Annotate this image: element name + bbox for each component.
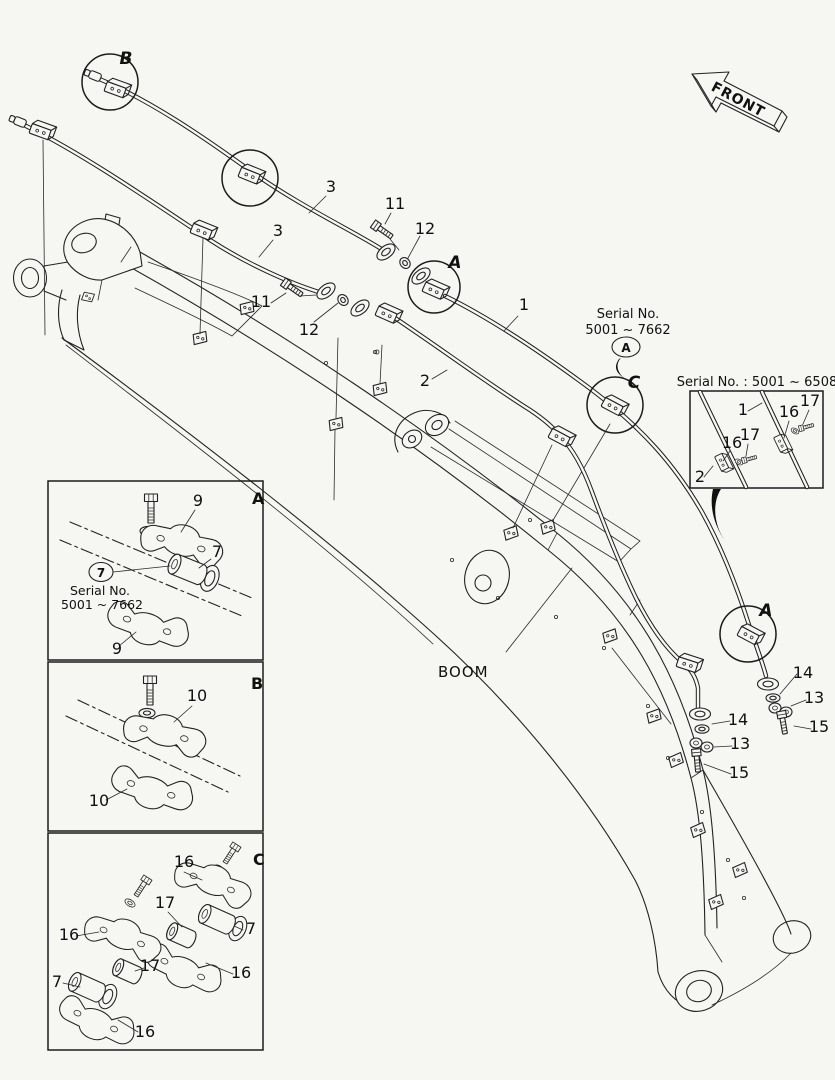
marker-a-right: A — [757, 601, 772, 621]
panel-b-bolt — [144, 676, 157, 705]
pipe-end-fitting — [83, 68, 102, 82]
parts-diagram-page: Serial No. 5001 ~ 7662 A Serial No. : 50… — [0, 0, 835, 1080]
callout-11-upper: 11 — [385, 194, 405, 213]
panel-b-callout-10-lower: 10 — [89, 791, 109, 810]
callout-13-inner: 13 — [730, 734, 750, 753]
front-arrow: FRONT — [692, 72, 787, 132]
serial-badge-letter: A — [621, 341, 631, 355]
callout-12-upper: 12 — [415, 219, 435, 238]
callout-14-inner: 14 — [728, 710, 748, 729]
serial-inset: Serial No. : 5001 ~ 6508 1 16 17 16 17 2 — [677, 375, 835, 488]
inset-callout-16-right: 16 — [779, 402, 799, 421]
clamp-pads — [192, 301, 749, 909]
boom-label: BOOM — [438, 663, 489, 681]
marker-a-top: A — [446, 253, 461, 273]
panel-a-corner: A — [252, 489, 265, 508]
marker-b: B — [120, 49, 133, 69]
panel-c-callout-17-r: 17 — [155, 893, 175, 912]
bolt-11-upper — [370, 220, 394, 241]
panel-c-callout-16-ll: 16 — [135, 1022, 155, 1041]
serial-note-line1: Serial No. — [597, 307, 660, 322]
panel-c-right-bushing-17 — [164, 921, 198, 949]
panel-a-callout-7: 7 — [212, 542, 222, 561]
callout-2: 2 — [420, 371, 430, 390]
callout-3-lower: 3 — [273, 221, 283, 240]
panel-b-callout-10-upper: 10 — [187, 686, 207, 705]
inset-callout-17-right: 17 — [800, 391, 820, 410]
callout-15-outer: 15 — [809, 717, 829, 736]
panel-c-corner: C — [253, 850, 265, 869]
detail-panel-b: B 10 10 — [48, 662, 263, 831]
panel-c-callout-16-ru: 16 — [174, 852, 194, 871]
panel-a-bolt — [145, 494, 158, 523]
panel-a-badge-7: 7 — [97, 566, 105, 580]
panel-b-corner: B — [251, 674, 263, 693]
panel-c-callout-16-rl: 16 — [231, 963, 251, 982]
panel-c-callout-17-l: 17 — [140, 956, 160, 975]
curved-arrow-small — [616, 358, 624, 378]
callout-1: 1 — [519, 295, 529, 314]
panel-a-serial2: 5001 ~ 7662 — [61, 597, 143, 612]
detail-panel-c: C 16 17 7 16 16 17 7 16 — [48, 833, 265, 1053]
main-callouts: B 3 11 12 3 A 11 12 1 2 C A 14 13 15 14 … — [120, 49, 830, 782]
callout-11-lower: 11 — [251, 292, 271, 311]
panel-c-callout-7-r: 7 — [246, 919, 256, 938]
panel-a-serial1: Serial No. — [70, 583, 130, 598]
serial-note-top: Serial No. 5001 ~ 7662 A — [585, 307, 670, 378]
inset-title: Serial No. : 5001 ~ 6508 — [677, 375, 835, 390]
panel-a-callout-9-lower: 9 — [112, 639, 122, 658]
inset-callout-2: 2 — [695, 467, 705, 486]
panel-b-clamp-lower — [107, 763, 197, 818]
callout-12-lower: 12 — [299, 320, 319, 339]
callout-3-upper: 3 — [326, 177, 336, 196]
marker-c: C — [628, 373, 641, 393]
inset-callout-17-left: 17 — [740, 425, 760, 444]
boom-body — [14, 140, 816, 1017]
callout-15-inner: 15 — [729, 763, 749, 782]
callout-13-outer: 13 — [804, 688, 824, 707]
detail-panel-a: A 9 7 7 Serial No. 5001 ~ 7662 9 — [48, 481, 265, 660]
boom-piping-diagram: Serial No. 5001 ~ 7662 A Serial No. : 50… — [0, 0, 835, 1080]
inset-callout-1: 1 — [738, 400, 748, 419]
panel-a-callout-9-upper: 9 — [193, 491, 203, 510]
rivet-dots — [324, 350, 745, 899]
panel-c-callout-7-l: 7 — [52, 972, 62, 991]
serial-note-line2: 5001 ~ 7662 — [585, 323, 670, 338]
callout-14-outer: 14 — [793, 663, 813, 682]
panel-c-callout-16-lu: 16 — [59, 925, 79, 944]
pipe-fittings — [8, 68, 792, 772]
panel-b-clamp-upper — [120, 705, 210, 760]
